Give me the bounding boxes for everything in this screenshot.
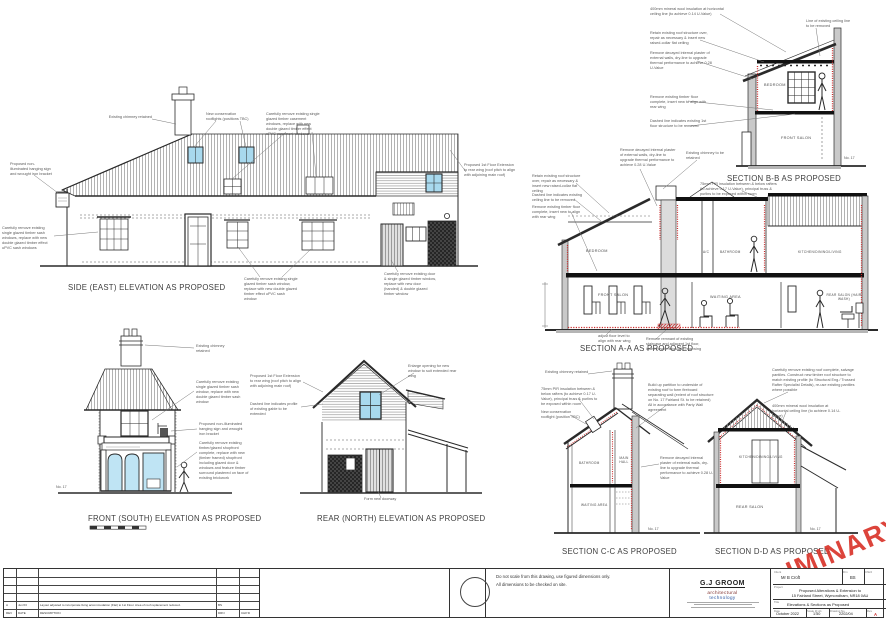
section-bb-drawing xyxy=(688,14,866,169)
project-line1: Proposed Alterations & Extension to xyxy=(773,588,886,593)
firm-name: G.J GROOM xyxy=(700,580,745,588)
rear-ann-gable: Dashed line indicates profile of existin… xyxy=(250,402,300,417)
east-ann-door: Carefully remove existing door & single … xyxy=(384,272,436,297)
cc-neighbour-label: No. 17 xyxy=(648,527,659,531)
east-ann-extension: Proposed 1st Floor Extension to rear win… xyxy=(464,163,516,178)
cc-ann-rooflight: New conservation rooflight (position TBC… xyxy=(541,410,585,420)
title-label: Title xyxy=(774,600,779,604)
east-ann-casement: Carefully remove existing single glazed … xyxy=(266,112,322,137)
revision-table: A Jun'23 Layout adjusted to incorporate … xyxy=(4,569,259,617)
rear-ann-window: Enlarge opening for new window to suit e… xyxy=(408,364,458,379)
rev-row-drn: BS xyxy=(218,601,238,607)
tb-divider xyxy=(259,569,260,617)
aa-ann-plaster: Remove decayed internal plaster of exter… xyxy=(620,148,676,168)
front-neighbour-label: No. 17 xyxy=(56,485,67,489)
bb-ann-insulation: 400mm mineral wool insulation at horizon… xyxy=(650,7,730,17)
title-block: A Jun'23 Layout adjusted to incorporate … xyxy=(3,568,884,618)
project-line2: 15 Fairland Street, Wymondham, NR18 0AU xyxy=(773,593,886,598)
drn-label: Drn xyxy=(843,570,848,574)
dd-ann-insulation: 400mm mineral wool insulation at horizon… xyxy=(772,404,842,419)
cc-ann-partition: Build up partition to underside of exist… xyxy=(648,383,714,413)
cc-room-bathroom: BATHROOM xyxy=(579,461,600,465)
aa-room-kitchen: KITCHEN/DINING/LIVING xyxy=(798,250,842,254)
stamp-circle xyxy=(460,577,490,607)
east-ann-sash-mid: Carefully remove existing single glazed … xyxy=(244,277,298,302)
aa-ann-stair: Remove remnant of existing staircase and… xyxy=(646,337,704,352)
aa-room-bathroom: BATHROOM xyxy=(720,250,741,254)
bb-room-bedroom: BEDROOM xyxy=(764,83,786,87)
aa-room-ac: A/C xyxy=(703,250,709,254)
rev-row-rev: A xyxy=(6,601,16,607)
front-ann-chimney: Existing chimney retained xyxy=(196,344,238,354)
aa-ann-pir: 75mm PIR insulation between & below raft… xyxy=(700,182,780,197)
note-check-site: All dimensions to be checked on site. xyxy=(496,581,666,589)
rev-header-drn: DRN xyxy=(218,609,238,615)
cc-room-hall: MAIN HALL xyxy=(617,456,631,464)
scale-value: 1:50 xyxy=(813,612,820,616)
dd-ann-roof: Carefully remove existing roof complete,… xyxy=(772,368,856,393)
title-block-fields: Client Mr B Croft Drn BS Chk'd Project P… xyxy=(773,569,886,617)
aa-ann-roof: Retain existing roof structure over, rep… xyxy=(532,174,588,194)
firm-logo: G.J GROOM architectural technology xyxy=(672,572,773,608)
front-ann-sign: Proposed non-illuminated hanging sign an… xyxy=(199,422,245,437)
aa-room-waiting: WAITING AREA xyxy=(710,295,741,299)
bb-ann-dashed: Dashed line indicates existing 1st floor… xyxy=(650,119,708,129)
front-ann-sash: Carefully remove existing single glazed … xyxy=(196,380,244,405)
rear-ann-doorway: Form new doorway xyxy=(364,497,406,502)
rev-header-date: DATE xyxy=(18,609,38,615)
cc-ann-pir: 75mm PIR insulation between & below raft… xyxy=(541,387,599,407)
note-no-scale: Do not scale from this drawing, use figu… xyxy=(496,573,666,581)
chkd-label: Chk'd xyxy=(865,570,872,574)
aa-ann-floor-level: adjust floor level to align with rear wi… xyxy=(598,334,638,344)
rev-row-date: Jun'23 xyxy=(18,601,38,607)
aa-ann-floor: Remove existing timber floor complete, i… xyxy=(532,205,584,220)
client-value: Mr B Croft xyxy=(781,575,800,580)
rev-header-rev: REV xyxy=(6,609,16,615)
front-elevation-title: FRONT (SOUTH) ELEVATION AS PROPOSED xyxy=(88,514,261,523)
dd-room-kitchen: KITCHEN/DINING/LIVING xyxy=(739,455,783,459)
aa-room-bedroom: BEDROOM xyxy=(586,249,608,253)
number-value: 2202/04 xyxy=(839,612,853,616)
title-value: Elevations & Sections as Proposed xyxy=(787,602,849,607)
bb-room-front-salon: FRONT SALON xyxy=(781,136,811,140)
rev-header-description: DESCRIPTION xyxy=(40,609,215,615)
bb-ann-ceiling-line: Line of existing ceiling line to be remo… xyxy=(806,19,854,29)
aa-ann-dashed-ceiling: Dashed line indicates existing ceiling l… xyxy=(532,193,586,203)
linework-layer xyxy=(0,0,886,621)
general-notes: Do not scale from this drawing, use figu… xyxy=(496,573,666,589)
date-value: October 2022 xyxy=(776,612,799,616)
east-ann-rooflights: New conservation rooflights (positions T… xyxy=(206,112,250,122)
rear-elevation-drawing xyxy=(300,361,482,498)
rear-ann-extension: Proposed 1st Floor Extension to rear win… xyxy=(250,374,302,389)
aa-room-rear-salon: REAR SALON (HAIR WASH) xyxy=(826,293,862,301)
dd-neighbour-label: No. 17 xyxy=(810,527,821,531)
bb-ann-plaster: Remove decayed internal plaster of exter… xyxy=(650,51,714,71)
drawing-sheet: SIDE (EAST) ELEVATION AS PROPOSED FRONT … xyxy=(0,0,886,621)
rev-row-description: Layout adjusted to incorporate living ac… xyxy=(40,601,215,607)
east-ann-sash-left: Carefully remove existing single glazed … xyxy=(2,226,54,251)
east-ann-sign: Proposed non-illuminated hanging sign an… xyxy=(10,162,52,177)
contact-text-line xyxy=(694,604,752,605)
aa-ann-chimney: Existing chimney to be retained xyxy=(686,151,730,161)
aa-room-front-salon: FRONT SALON xyxy=(598,293,628,297)
rev-value: A xyxy=(874,612,877,617)
rev-label: Rev xyxy=(867,609,872,613)
firm-line2: technology xyxy=(672,595,773,600)
tb-divider xyxy=(669,569,670,617)
front-ann-shopfront: Carefully remove existing timber/glazed … xyxy=(199,441,253,481)
bb-ann-floor: Remove existing timber floor complete, i… xyxy=(650,95,706,110)
bb-neighbour-label: No. 17 xyxy=(844,156,855,160)
tb-divider xyxy=(449,569,450,617)
east-ann-chimney: Existing chimney retained xyxy=(106,115,152,120)
contact-text-line xyxy=(691,607,755,608)
cc-ann-chimney: Existing chimney retained xyxy=(545,370,589,375)
east-elevation-drawing xyxy=(34,87,478,277)
cc-ann-plaster: Remove decayed internal plaster of exter… xyxy=(660,456,714,481)
bb-ann-roof: Retain existing roof structure over, rep… xyxy=(650,31,712,46)
dd-room-rear-salon: REAR SALON xyxy=(736,505,763,509)
rear-elevation-title: REAR (NORTH) ELEVATION AS PROPOSED xyxy=(317,514,485,523)
client-label: Client xyxy=(774,570,781,574)
rev-header-chkd: CHK'D xyxy=(241,609,259,615)
east-elevation-title: SIDE (EAST) ELEVATION AS PROPOSED xyxy=(68,283,225,292)
drn-value: BS xyxy=(850,575,856,580)
contact-text-line xyxy=(687,602,759,603)
section-cc-title: SECTION C-C AS PROPOSED xyxy=(562,547,677,556)
cc-room-waiting: WAITING AREA xyxy=(581,503,608,507)
